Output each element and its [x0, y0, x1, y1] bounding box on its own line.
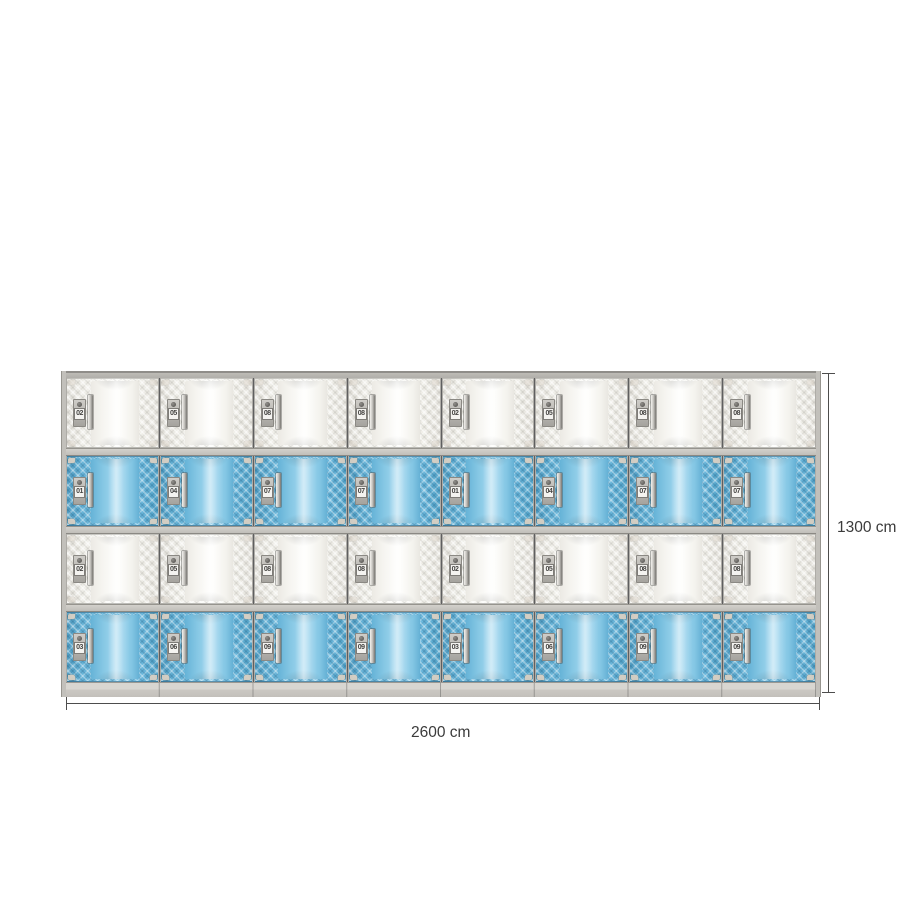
- corner-cap-icon: [350, 536, 357, 541]
- corner-cap-icon: [631, 597, 638, 602]
- corner-cap-icon: [619, 614, 626, 619]
- lock-handle-icon: [651, 629, 656, 663]
- corner-cap-icon: [619, 380, 626, 385]
- corner-cap-icon: [68, 675, 75, 680]
- corner-cap-icon: [807, 519, 814, 524]
- height-dimension-label: 1300 cm: [837, 519, 896, 537]
- corner-cap-icon: [432, 614, 439, 619]
- door-cell: 07: [628, 456, 722, 526]
- locker-door: 09: [255, 612, 346, 682]
- locker-door: 09: [349, 612, 440, 682]
- lock-handle-icon: [745, 629, 750, 663]
- corner-cap-icon: [338, 597, 345, 602]
- door-lock: 02: [73, 399, 86, 427]
- coin-lock-icon: [546, 402, 551, 407]
- coin-lock-icon: [734, 480, 739, 485]
- door-cell: 09: [628, 612, 722, 682]
- lock-handle-icon: [88, 629, 93, 663]
- corner-cap-icon: [631, 519, 638, 524]
- lock-handle-icon: [276, 395, 281, 429]
- corner-cap-icon: [444, 380, 451, 385]
- corner-cap-icon: [713, 441, 720, 446]
- door-number-label: 09: [262, 642, 273, 654]
- door-number-label: 02: [74, 408, 85, 420]
- coin-lock-icon: [453, 480, 458, 485]
- door-lock: 05: [542, 555, 555, 583]
- door-cell: 08: [253, 534, 347, 604]
- corner-cap-icon: [350, 675, 357, 680]
- door-lock: 08: [355, 555, 368, 583]
- corner-cap-icon: [338, 536, 345, 541]
- lock-handle-icon: [651, 473, 656, 507]
- corner-cap-icon: [725, 458, 732, 463]
- corner-cap-icon: [713, 458, 720, 463]
- corner-cap-icon: [537, 380, 544, 385]
- door-lock: 09: [355, 633, 368, 661]
- door-number-label: 05: [168, 564, 179, 576]
- corner-cap-icon: [713, 597, 720, 602]
- locker-door: 07: [349, 456, 440, 526]
- lock-handle-icon: [276, 551, 281, 585]
- locker-door: 07: [255, 456, 346, 526]
- corner-cap-icon: [162, 380, 169, 385]
- corner-cap-icon: [350, 441, 357, 446]
- corner-cap-icon: [244, 441, 251, 446]
- corner-cap-icon: [537, 597, 544, 602]
- locker-door: 08: [349, 378, 440, 448]
- locker-door: 09: [630, 612, 721, 682]
- door-bulge-panel: [466, 537, 514, 601]
- corner-cap-icon: [807, 597, 814, 602]
- corner-cap-icon: [725, 441, 732, 446]
- locker-door: 02: [443, 534, 534, 604]
- corner-cap-icon: [444, 519, 451, 524]
- locker-door: 05: [536, 534, 627, 604]
- locker-base-plinth: [66, 682, 816, 697]
- corner-cap-icon: [537, 536, 544, 541]
- coin-lock-icon: [546, 558, 551, 563]
- door-cell: 05: [534, 378, 628, 448]
- door-bulge-panel: [654, 381, 702, 445]
- door-cell: 08: [347, 378, 441, 448]
- corner-cap-icon: [444, 597, 451, 602]
- door-lock: 08: [261, 399, 274, 427]
- locker-door: 08: [724, 378, 815, 448]
- coin-lock-icon: [171, 558, 176, 563]
- corner-cap-icon: [338, 441, 345, 446]
- door-bulge-panel: [185, 615, 233, 679]
- corner-cap-icon: [256, 441, 263, 446]
- corner-cap-icon: [444, 458, 451, 463]
- coin-lock-icon: [265, 402, 270, 407]
- locker-door: 05: [161, 534, 252, 604]
- corner-cap-icon: [150, 380, 157, 385]
- door-bulge-panel: [185, 459, 233, 523]
- corner-cap-icon: [444, 614, 451, 619]
- door-cell: 04: [159, 456, 253, 526]
- door-number-label: 08: [637, 408, 648, 420]
- corner-cap-icon: [162, 675, 169, 680]
- corner-cap-icon: [162, 441, 169, 446]
- corner-cap-icon: [68, 380, 75, 385]
- locker-product-diagram: 02 05 08: [0, 0, 900, 900]
- corner-cap-icon: [432, 458, 439, 463]
- locker-door: 06: [161, 612, 252, 682]
- door-bulge-panel: [278, 459, 326, 523]
- corner-cap-icon: [631, 458, 638, 463]
- door-bulge-panel: [560, 459, 608, 523]
- door-lock: 09: [636, 633, 649, 661]
- locker-row: 02 05 08: [66, 378, 816, 448]
- door-cell: 05: [159, 378, 253, 448]
- corner-cap-icon: [807, 458, 814, 463]
- coin-lock-icon: [734, 558, 739, 563]
- door-number-label: 08: [262, 408, 273, 420]
- door-bulge-panel: [466, 615, 514, 679]
- door-lock: 01: [73, 477, 86, 505]
- lock-handle-icon: [370, 551, 375, 585]
- coin-lock-icon: [453, 402, 458, 407]
- locker-door: 01: [67, 456, 158, 526]
- coin-lock-icon: [640, 480, 645, 485]
- door-lock: 08: [355, 399, 368, 427]
- locker-door: 08: [255, 534, 346, 604]
- door-cell: 05: [159, 534, 253, 604]
- corner-cap-icon: [432, 536, 439, 541]
- corner-cap-icon: [256, 675, 263, 680]
- door-lock: 08: [261, 555, 274, 583]
- corner-cap-icon: [256, 458, 263, 463]
- corner-cap-icon: [619, 675, 626, 680]
- locker-door: 03: [67, 612, 158, 682]
- corner-cap-icon: [68, 536, 75, 541]
- corner-cap-icon: [244, 675, 251, 680]
- corner-cap-icon: [713, 519, 720, 524]
- door-number-label: 08: [356, 564, 367, 576]
- corner-cap-icon: [432, 675, 439, 680]
- corner-cap-icon: [444, 441, 451, 446]
- corner-cap-icon: [619, 519, 626, 524]
- coin-lock-icon: [359, 636, 364, 641]
- corner-cap-icon: [256, 614, 263, 619]
- door-number-label: 02: [450, 564, 461, 576]
- door-number-label: 01: [74, 486, 85, 498]
- corner-cap-icon: [338, 614, 345, 619]
- door-number-label: 09: [731, 642, 742, 654]
- corner-cap-icon: [713, 675, 720, 680]
- locker-door: 05: [161, 378, 252, 448]
- door-cell: 02: [441, 534, 535, 604]
- door-cell: 07: [722, 456, 816, 526]
- corner-cap-icon: [338, 380, 345, 385]
- corner-cap-icon: [350, 614, 357, 619]
- door-number-label: 08: [637, 564, 648, 576]
- corner-cap-icon: [338, 519, 345, 524]
- corner-cap-icon: [244, 597, 251, 602]
- door-lock: 05: [167, 555, 180, 583]
- locker-door: 08: [724, 534, 815, 604]
- door-lock: 08: [636, 555, 649, 583]
- door-bulge-panel: [185, 381, 233, 445]
- door-number-label: 06: [543, 642, 554, 654]
- lock-handle-icon: [276, 473, 281, 507]
- door-bulge-panel: [466, 381, 514, 445]
- coin-lock-icon: [734, 636, 739, 641]
- corner-cap-icon: [619, 441, 626, 446]
- door-cell: 08: [628, 378, 722, 448]
- lock-handle-icon: [745, 395, 750, 429]
- height-dimension-line: [828, 373, 829, 693]
- door-bulge-panel: [91, 615, 139, 679]
- coin-lock-icon: [359, 480, 364, 485]
- corner-cap-icon: [244, 380, 251, 385]
- door-cell: 07: [347, 456, 441, 526]
- lock-handle-icon: [182, 395, 187, 429]
- door-number-label: 02: [450, 408, 461, 420]
- corner-cap-icon: [150, 614, 157, 619]
- door-lock: 07: [355, 477, 368, 505]
- door-bulge-panel: [748, 537, 796, 601]
- corner-cap-icon: [537, 441, 544, 446]
- door-lock: 06: [542, 633, 555, 661]
- corner-cap-icon: [807, 441, 814, 446]
- corner-cap-icon: [338, 675, 345, 680]
- corner-cap-icon: [631, 614, 638, 619]
- coin-lock-icon: [265, 636, 270, 641]
- door-cell: 02: [66, 534, 159, 604]
- corner-cap-icon: [68, 614, 75, 619]
- corner-cap-icon: [631, 675, 638, 680]
- locker-door: 09: [724, 612, 815, 682]
- corner-cap-icon: [256, 380, 263, 385]
- door-lock: 05: [542, 399, 555, 427]
- lock-handle-icon: [182, 629, 187, 663]
- door-bulge-panel: [372, 537, 420, 601]
- lock-handle-icon: [557, 395, 562, 429]
- corner-cap-icon: [432, 519, 439, 524]
- door-lock: 02: [449, 399, 462, 427]
- door-lock: 09: [261, 633, 274, 661]
- lock-handle-icon: [182, 473, 187, 507]
- door-bulge-panel: [91, 381, 139, 445]
- door-bulge-panel: [372, 381, 420, 445]
- corner-cap-icon: [350, 380, 357, 385]
- door-cell: 08: [347, 534, 441, 604]
- door-number-label: 07: [356, 486, 367, 498]
- corner-cap-icon: [713, 614, 720, 619]
- door-lock: 02: [73, 555, 86, 583]
- corner-cap-icon: [444, 675, 451, 680]
- locker-bank: 02 05 08: [62, 371, 820, 697]
- door-lock: 06: [167, 633, 180, 661]
- corner-cap-icon: [525, 380, 532, 385]
- corner-cap-icon: [350, 519, 357, 524]
- coin-lock-icon: [265, 480, 270, 485]
- door-lock: 07: [261, 477, 274, 505]
- locker-door: 05: [536, 378, 627, 448]
- width-dimension-line: [66, 703, 820, 704]
- corner-cap-icon: [725, 519, 732, 524]
- coin-lock-icon: [734, 402, 739, 407]
- door-number-label: 09: [356, 642, 367, 654]
- corner-cap-icon: [244, 519, 251, 524]
- corner-cap-icon: [150, 675, 157, 680]
- coin-lock-icon: [77, 636, 82, 641]
- locker-door: 08: [630, 378, 721, 448]
- door-number-label: 09: [637, 642, 648, 654]
- locker-row: 02 05 08: [66, 534, 816, 604]
- corner-cap-icon: [631, 441, 638, 446]
- door-bulge-panel: [91, 537, 139, 601]
- door-lock: 08: [730, 399, 743, 427]
- corner-cap-icon: [244, 614, 251, 619]
- door-bulge-panel: [372, 615, 420, 679]
- door-number-label: 08: [262, 564, 273, 576]
- corner-cap-icon: [256, 536, 263, 541]
- lock-handle-icon: [464, 629, 469, 663]
- locker-door: 03: [443, 612, 534, 682]
- locker-door: 01: [443, 456, 534, 526]
- door-bulge-panel: [560, 381, 608, 445]
- door-number-label: 01: [450, 486, 461, 498]
- door-bulge-panel: [748, 381, 796, 445]
- door-bulge-panel: [466, 459, 514, 523]
- door-bulge-panel: [278, 381, 326, 445]
- corner-cap-icon: [525, 536, 532, 541]
- lock-handle-icon: [464, 551, 469, 585]
- locker-door: 04: [161, 456, 252, 526]
- coin-lock-icon: [265, 558, 270, 563]
- corner-cap-icon: [162, 536, 169, 541]
- lock-handle-icon: [745, 473, 750, 507]
- door-number-label: 03: [450, 642, 461, 654]
- corner-cap-icon: [68, 441, 75, 446]
- door-cell: 06: [159, 612, 253, 682]
- door-bulge-panel: [278, 537, 326, 601]
- corner-cap-icon: [162, 519, 169, 524]
- locker-door: 04: [536, 456, 627, 526]
- coin-lock-icon: [77, 480, 82, 485]
- corner-cap-icon: [525, 675, 532, 680]
- locker-rows: 02 05 08: [66, 378, 816, 682]
- door-number-label: 07: [637, 486, 648, 498]
- shelf-gap: [66, 604, 816, 612]
- door-number-label: 04: [543, 486, 554, 498]
- door-cell: 08: [628, 534, 722, 604]
- coin-lock-icon: [171, 402, 176, 407]
- locker-row: 01 04 07: [66, 456, 816, 526]
- coin-lock-icon: [359, 558, 364, 563]
- lock-handle-icon: [88, 473, 93, 507]
- door-lock: 01: [449, 477, 462, 505]
- corner-cap-icon: [150, 458, 157, 463]
- door-lock: 04: [167, 477, 180, 505]
- corner-cap-icon: [725, 597, 732, 602]
- corner-cap-icon: [68, 458, 75, 463]
- locker-door: 07: [724, 456, 815, 526]
- locker-door: 08: [349, 534, 440, 604]
- corner-cap-icon: [244, 458, 251, 463]
- door-bulge-panel: [654, 537, 702, 601]
- door-cell: 02: [441, 378, 535, 448]
- corner-cap-icon: [725, 536, 732, 541]
- door-lock: 03: [73, 633, 86, 661]
- shelf-gap: [66, 448, 816, 456]
- coin-lock-icon: [77, 558, 82, 563]
- width-dimension-label: 2600 cm: [411, 724, 470, 742]
- door-bulge-panel: [278, 615, 326, 679]
- corner-cap-icon: [537, 614, 544, 619]
- door-number-label: 06: [168, 642, 179, 654]
- lock-handle-icon: [557, 629, 562, 663]
- coin-lock-icon: [453, 558, 458, 563]
- corner-cap-icon: [525, 441, 532, 446]
- door-lock: 07: [730, 477, 743, 505]
- corner-cap-icon: [537, 675, 544, 680]
- corner-cap-icon: [432, 597, 439, 602]
- door-number-label: 08: [731, 564, 742, 576]
- corner-cap-icon: [68, 519, 75, 524]
- corner-cap-icon: [444, 536, 451, 541]
- coin-lock-icon: [359, 402, 364, 407]
- corner-cap-icon: [244, 536, 251, 541]
- corner-cap-icon: [432, 441, 439, 446]
- corner-cap-icon: [631, 380, 638, 385]
- corner-cap-icon: [725, 675, 732, 680]
- door-bulge-panel: [748, 459, 796, 523]
- coin-lock-icon: [640, 402, 645, 407]
- corner-cap-icon: [525, 597, 532, 602]
- door-number-label: 08: [731, 408, 742, 420]
- lock-handle-icon: [557, 473, 562, 507]
- lock-handle-icon: [464, 473, 469, 507]
- locker-door: 08: [630, 534, 721, 604]
- locker-door: 02: [67, 378, 158, 448]
- coin-lock-icon: [546, 636, 551, 641]
- door-bulge-panel: [91, 459, 139, 523]
- locker-door: 08: [255, 378, 346, 448]
- corner-cap-icon: [537, 519, 544, 524]
- corner-cap-icon: [725, 380, 732, 385]
- door-cell: 09: [347, 612, 441, 682]
- door-number-label: 08: [356, 408, 367, 420]
- corner-cap-icon: [432, 380, 439, 385]
- locker-door: 06: [536, 612, 627, 682]
- door-number-label: 07: [731, 486, 742, 498]
- corner-cap-icon: [162, 597, 169, 602]
- lock-handle-icon: [651, 551, 656, 585]
- corner-cap-icon: [525, 519, 532, 524]
- coin-lock-icon: [453, 636, 458, 641]
- door-bulge-panel: [654, 615, 702, 679]
- corner-cap-icon: [725, 614, 732, 619]
- door-lock: 02: [449, 555, 462, 583]
- lock-handle-icon: [651, 395, 656, 429]
- locker-door: 07: [630, 456, 721, 526]
- shelf-gap: [66, 526, 816, 534]
- coin-lock-icon: [171, 480, 176, 485]
- corner-cap-icon: [619, 536, 626, 541]
- corner-cap-icon: [619, 597, 626, 602]
- coin-lock-icon: [546, 480, 551, 485]
- locker-row: 03 06 09: [66, 612, 816, 682]
- lock-handle-icon: [88, 395, 93, 429]
- door-lock: 08: [636, 399, 649, 427]
- door-cell: 01: [441, 456, 535, 526]
- lock-handle-icon: [370, 395, 375, 429]
- corner-cap-icon: [713, 380, 720, 385]
- corner-cap-icon: [150, 441, 157, 446]
